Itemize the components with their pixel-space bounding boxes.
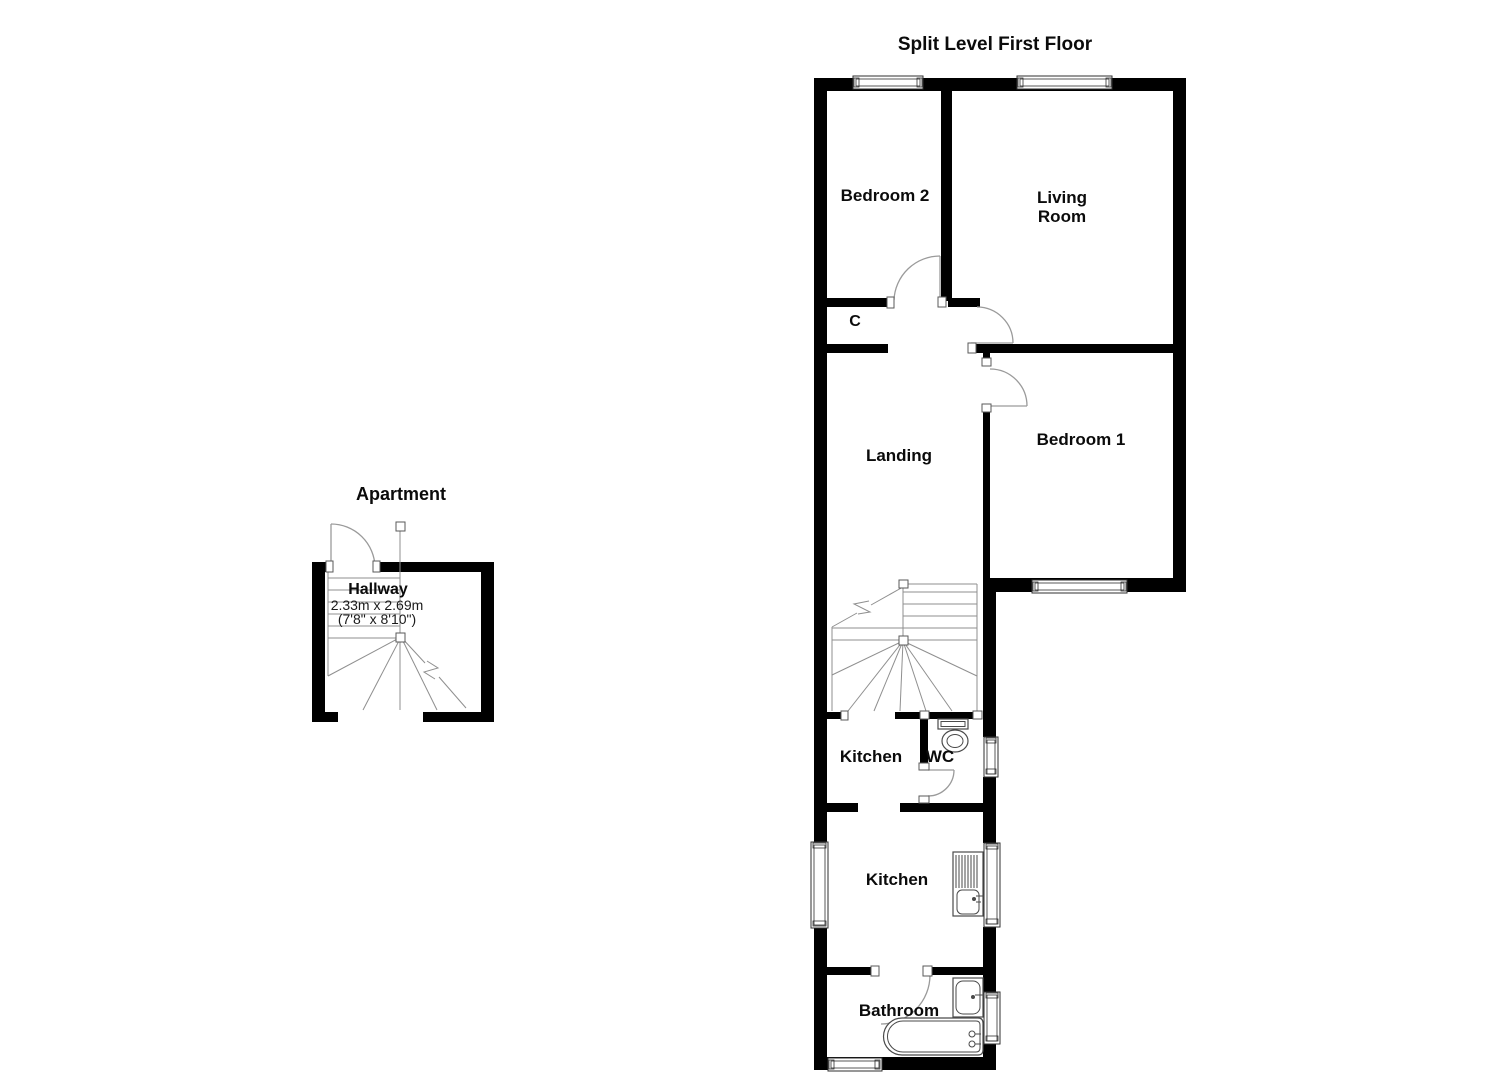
kitchen-sink-unit-icon — [953, 852, 984, 916]
wall-stairs-bottom-mid — [895, 712, 920, 719]
window-kitchen-right — [984, 843, 1000, 927]
stair-fan-lines — [832, 641, 977, 711]
wall-right-lower-4 — [983, 1044, 996, 1057]
apartment-entry-door — [331, 524, 375, 567]
stair-break-zigzag — [424, 661, 438, 679]
label-kitchen-upper: Kitchen — [840, 747, 902, 766]
wall-right-upper — [1173, 78, 1186, 592]
wall-ap-right — [481, 562, 494, 722]
wall-below-bedroom2-right — [948, 298, 980, 307]
wall-stairs-bottom-left — [827, 712, 841, 719]
wall-bedroom1-divider — [983, 412, 990, 579]
apartment-stair-center-newel — [396, 633, 405, 642]
wall-bathroom-top-right — [932, 967, 983, 975]
apartment-stair-top-newel — [396, 522, 405, 531]
label-kitchen-lower: Kitchen — [866, 870, 928, 889]
wall-ap-bottom-right — [423, 712, 494, 722]
stair-break-line-a — [832, 613, 857, 627]
wall-ap-top — [377, 562, 494, 572]
first-floor-title: Split Level First Floor — [898, 34, 1093, 55]
wall-landing-top-left — [827, 344, 888, 353]
apartment-jambs — [326, 561, 380, 572]
wall-ap-bottom-left — [312, 712, 338, 722]
window-bedroom1 — [1032, 580, 1127, 593]
stair-center-newel — [899, 636, 908, 645]
window-bathroom-bottom — [828, 1058, 882, 1071]
label-wc: WC — [926, 747, 954, 766]
label-bedroom1: Bedroom 1 — [1037, 430, 1126, 449]
living-room-door — [971, 307, 1013, 343]
window-wc — [984, 737, 998, 777]
apartment-title: Apartment — [356, 484, 446, 504]
wall-stairs-bottom-right — [929, 712, 973, 719]
window-bathroom-right — [984, 992, 1000, 1044]
label-closet: C — [849, 313, 861, 330]
wall-left-lower — [814, 928, 827, 1070]
wall-bedroom2-living-divider — [941, 90, 952, 301]
wall-right-lower-2 — [983, 777, 996, 843]
wall-right-lower-3 — [983, 927, 996, 992]
window-bedroom2 — [853, 76, 923, 89]
wall-bathroom-top-left — [827, 967, 872, 975]
bedroom1-door — [990, 369, 1027, 406]
label-living-line1: Living — [1037, 188, 1087, 207]
landing-staircase — [832, 580, 977, 711]
floorplan-page: Split Level First Floor — [0, 0, 1485, 1080]
label-bathroom: Bathroom — [859, 1001, 939, 1020]
window-living-room — [1017, 76, 1112, 89]
wall-below-bedroom2-left — [827, 298, 888, 307]
wall-left-upper — [814, 78, 827, 842]
bathtub-icon — [884, 1018, 983, 1055]
bedroom2-door — [894, 256, 940, 300]
label-bedroom2: Bedroom 2 — [841, 186, 930, 205]
wall-living-bottom — [968, 344, 1173, 353]
label-living-line2: Room — [1038, 207, 1086, 226]
wall-ap-left — [312, 562, 325, 722]
wc-door — [928, 770, 954, 796]
label-hallway-size-imperial: (7'8" x 8'10") — [338, 611, 416, 627]
first-floor-plan: Split Level First Floor — [811, 34, 1186, 1071]
label-landing: Landing — [866, 446, 932, 465]
bathroom-sink-icon — [953, 978, 984, 1017]
stair-break-line-b — [871, 587, 903, 605]
apartment-plan: Apartment — [312, 484, 494, 722]
floorplan-svg: Split Level First Floor — [0, 0, 1485, 1080]
label-hallway: Hallway — [348, 581, 408, 598]
apartment-labels: Hallway 2.33m x 2.69m (7'8" x 8'10") — [331, 581, 424, 627]
stair-break-zigzag — [854, 601, 870, 614]
wall-kitchen-divider-left — [827, 803, 858, 812]
window-kitchen-left — [811, 842, 828, 928]
stair-top-newel — [899, 580, 908, 588]
wall-right-lower-1 — [983, 592, 996, 737]
apartment-stair-fan — [328, 637, 466, 710]
stair-break-line-b — [439, 677, 466, 708]
wall-kitchen-divider-right — [900, 803, 983, 812]
